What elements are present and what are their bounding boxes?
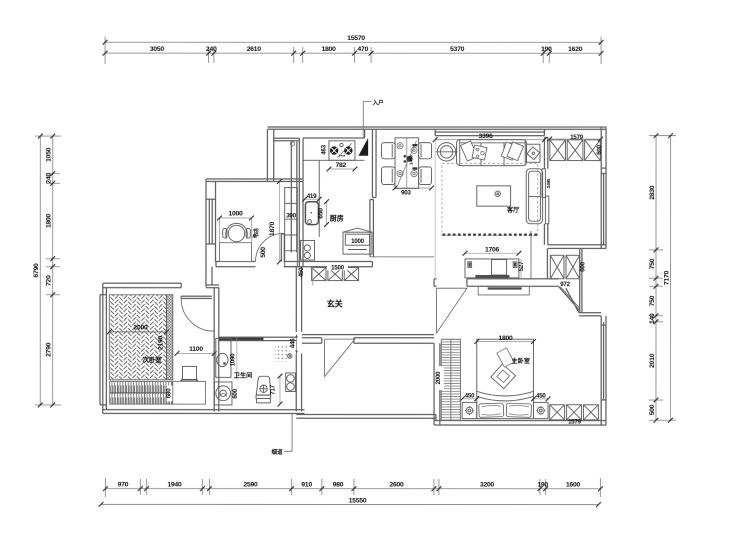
svg-text:782: 782 bbox=[336, 162, 347, 169]
svg-text:2600: 2600 bbox=[389, 482, 404, 489]
svg-text:入户: 入户 bbox=[372, 98, 384, 106]
svg-text:2830: 2830 bbox=[649, 185, 656, 200]
svg-text:300: 300 bbox=[286, 212, 296, 219]
svg-text:6790: 6790 bbox=[33, 263, 40, 278]
svg-text:1000: 1000 bbox=[351, 238, 365, 245]
svg-text:1100: 1100 bbox=[189, 346, 203, 353]
svg-text:980: 980 bbox=[333, 482, 344, 489]
svg-text:600: 600 bbox=[580, 261, 587, 271]
svg-text:1800: 1800 bbox=[498, 335, 513, 342]
svg-text:190: 190 bbox=[537, 482, 548, 489]
svg-text:972: 972 bbox=[560, 281, 570, 288]
svg-text:717: 717 bbox=[269, 384, 276, 394]
svg-text:3050: 3050 bbox=[150, 46, 165, 53]
svg-text:主卧室: 主卧室 bbox=[511, 357, 530, 365]
svg-text:1000: 1000 bbox=[228, 210, 243, 217]
svg-text:2495: 2495 bbox=[546, 178, 552, 188]
svg-text:190: 190 bbox=[541, 46, 552, 53]
svg-text:2610: 2610 bbox=[247, 46, 262, 53]
svg-text:527: 527 bbox=[518, 261, 525, 271]
svg-text:650: 650 bbox=[318, 208, 325, 219]
svg-text:1940: 1940 bbox=[167, 482, 182, 489]
svg-text:140: 140 bbox=[649, 313, 656, 324]
svg-text:1500: 1500 bbox=[331, 265, 345, 272]
svg-text:680: 680 bbox=[166, 388, 173, 398]
svg-text:600: 600 bbox=[596, 144, 603, 154]
svg-text:240: 240 bbox=[206, 46, 217, 53]
svg-text:玄关: 玄关 bbox=[327, 298, 343, 308]
svg-text:750: 750 bbox=[649, 295, 656, 306]
svg-text:903: 903 bbox=[401, 189, 411, 196]
svg-text:卫生间: 卫生间 bbox=[234, 371, 253, 379]
svg-text:1579: 1579 bbox=[568, 418, 582, 425]
svg-text:15550: 15550 bbox=[349, 498, 367, 505]
svg-text:419: 419 bbox=[307, 193, 317, 200]
svg-text:470: 470 bbox=[357, 46, 368, 53]
svg-text:500: 500 bbox=[260, 247, 267, 258]
svg-text:1416: 1416 bbox=[409, 155, 414, 165]
svg-text:240: 240 bbox=[46, 173, 53, 184]
svg-text:客厅: 客厅 bbox=[506, 206, 520, 214]
svg-text:446: 446 bbox=[289, 338, 296, 348]
svg-text:1800: 1800 bbox=[322, 46, 337, 53]
svg-text:2010: 2010 bbox=[649, 353, 656, 368]
svg-text:1870: 1870 bbox=[269, 221, 276, 236]
svg-text:2190: 2190 bbox=[157, 335, 164, 350]
svg-text:1050: 1050 bbox=[46, 147, 53, 162]
svg-text:3396: 3396 bbox=[478, 133, 493, 140]
svg-text:1706: 1706 bbox=[485, 246, 500, 253]
svg-text:15570: 15570 bbox=[347, 35, 365, 42]
svg-text:5370: 5370 bbox=[450, 46, 465, 53]
svg-text:600: 600 bbox=[232, 388, 239, 398]
svg-text:750: 750 bbox=[649, 258, 656, 269]
svg-text:次卧室: 次卧室 bbox=[142, 355, 162, 364]
svg-text:烟道: 烟道 bbox=[271, 448, 283, 456]
svg-text:463: 463 bbox=[320, 144, 327, 154]
svg-text:1620: 1620 bbox=[568, 46, 583, 53]
svg-text:720: 720 bbox=[46, 275, 53, 286]
svg-text:3200: 3200 bbox=[480, 482, 495, 489]
svg-text:7170: 7170 bbox=[663, 270, 670, 285]
svg-text:2000: 2000 bbox=[133, 324, 148, 331]
svg-text:1400: 1400 bbox=[254, 228, 259, 237]
svg-text:1090: 1090 bbox=[229, 353, 236, 367]
svg-text:2590: 2590 bbox=[243, 482, 258, 489]
svg-text:500: 500 bbox=[649, 404, 656, 415]
svg-text:2000: 2000 bbox=[435, 371, 442, 385]
svg-text:450: 450 bbox=[298, 267, 305, 277]
svg-text:450: 450 bbox=[465, 393, 475, 400]
svg-text:1579: 1579 bbox=[570, 134, 584, 141]
svg-text:1600: 1600 bbox=[566, 482, 581, 489]
svg-text:2790: 2790 bbox=[46, 342, 53, 357]
svg-text:910: 910 bbox=[301, 482, 312, 489]
svg-text:厨房: 厨房 bbox=[330, 213, 344, 222]
svg-text:450: 450 bbox=[536, 393, 546, 400]
svg-text:970: 970 bbox=[118, 482, 129, 489]
svg-text:1800: 1800 bbox=[46, 213, 53, 228]
